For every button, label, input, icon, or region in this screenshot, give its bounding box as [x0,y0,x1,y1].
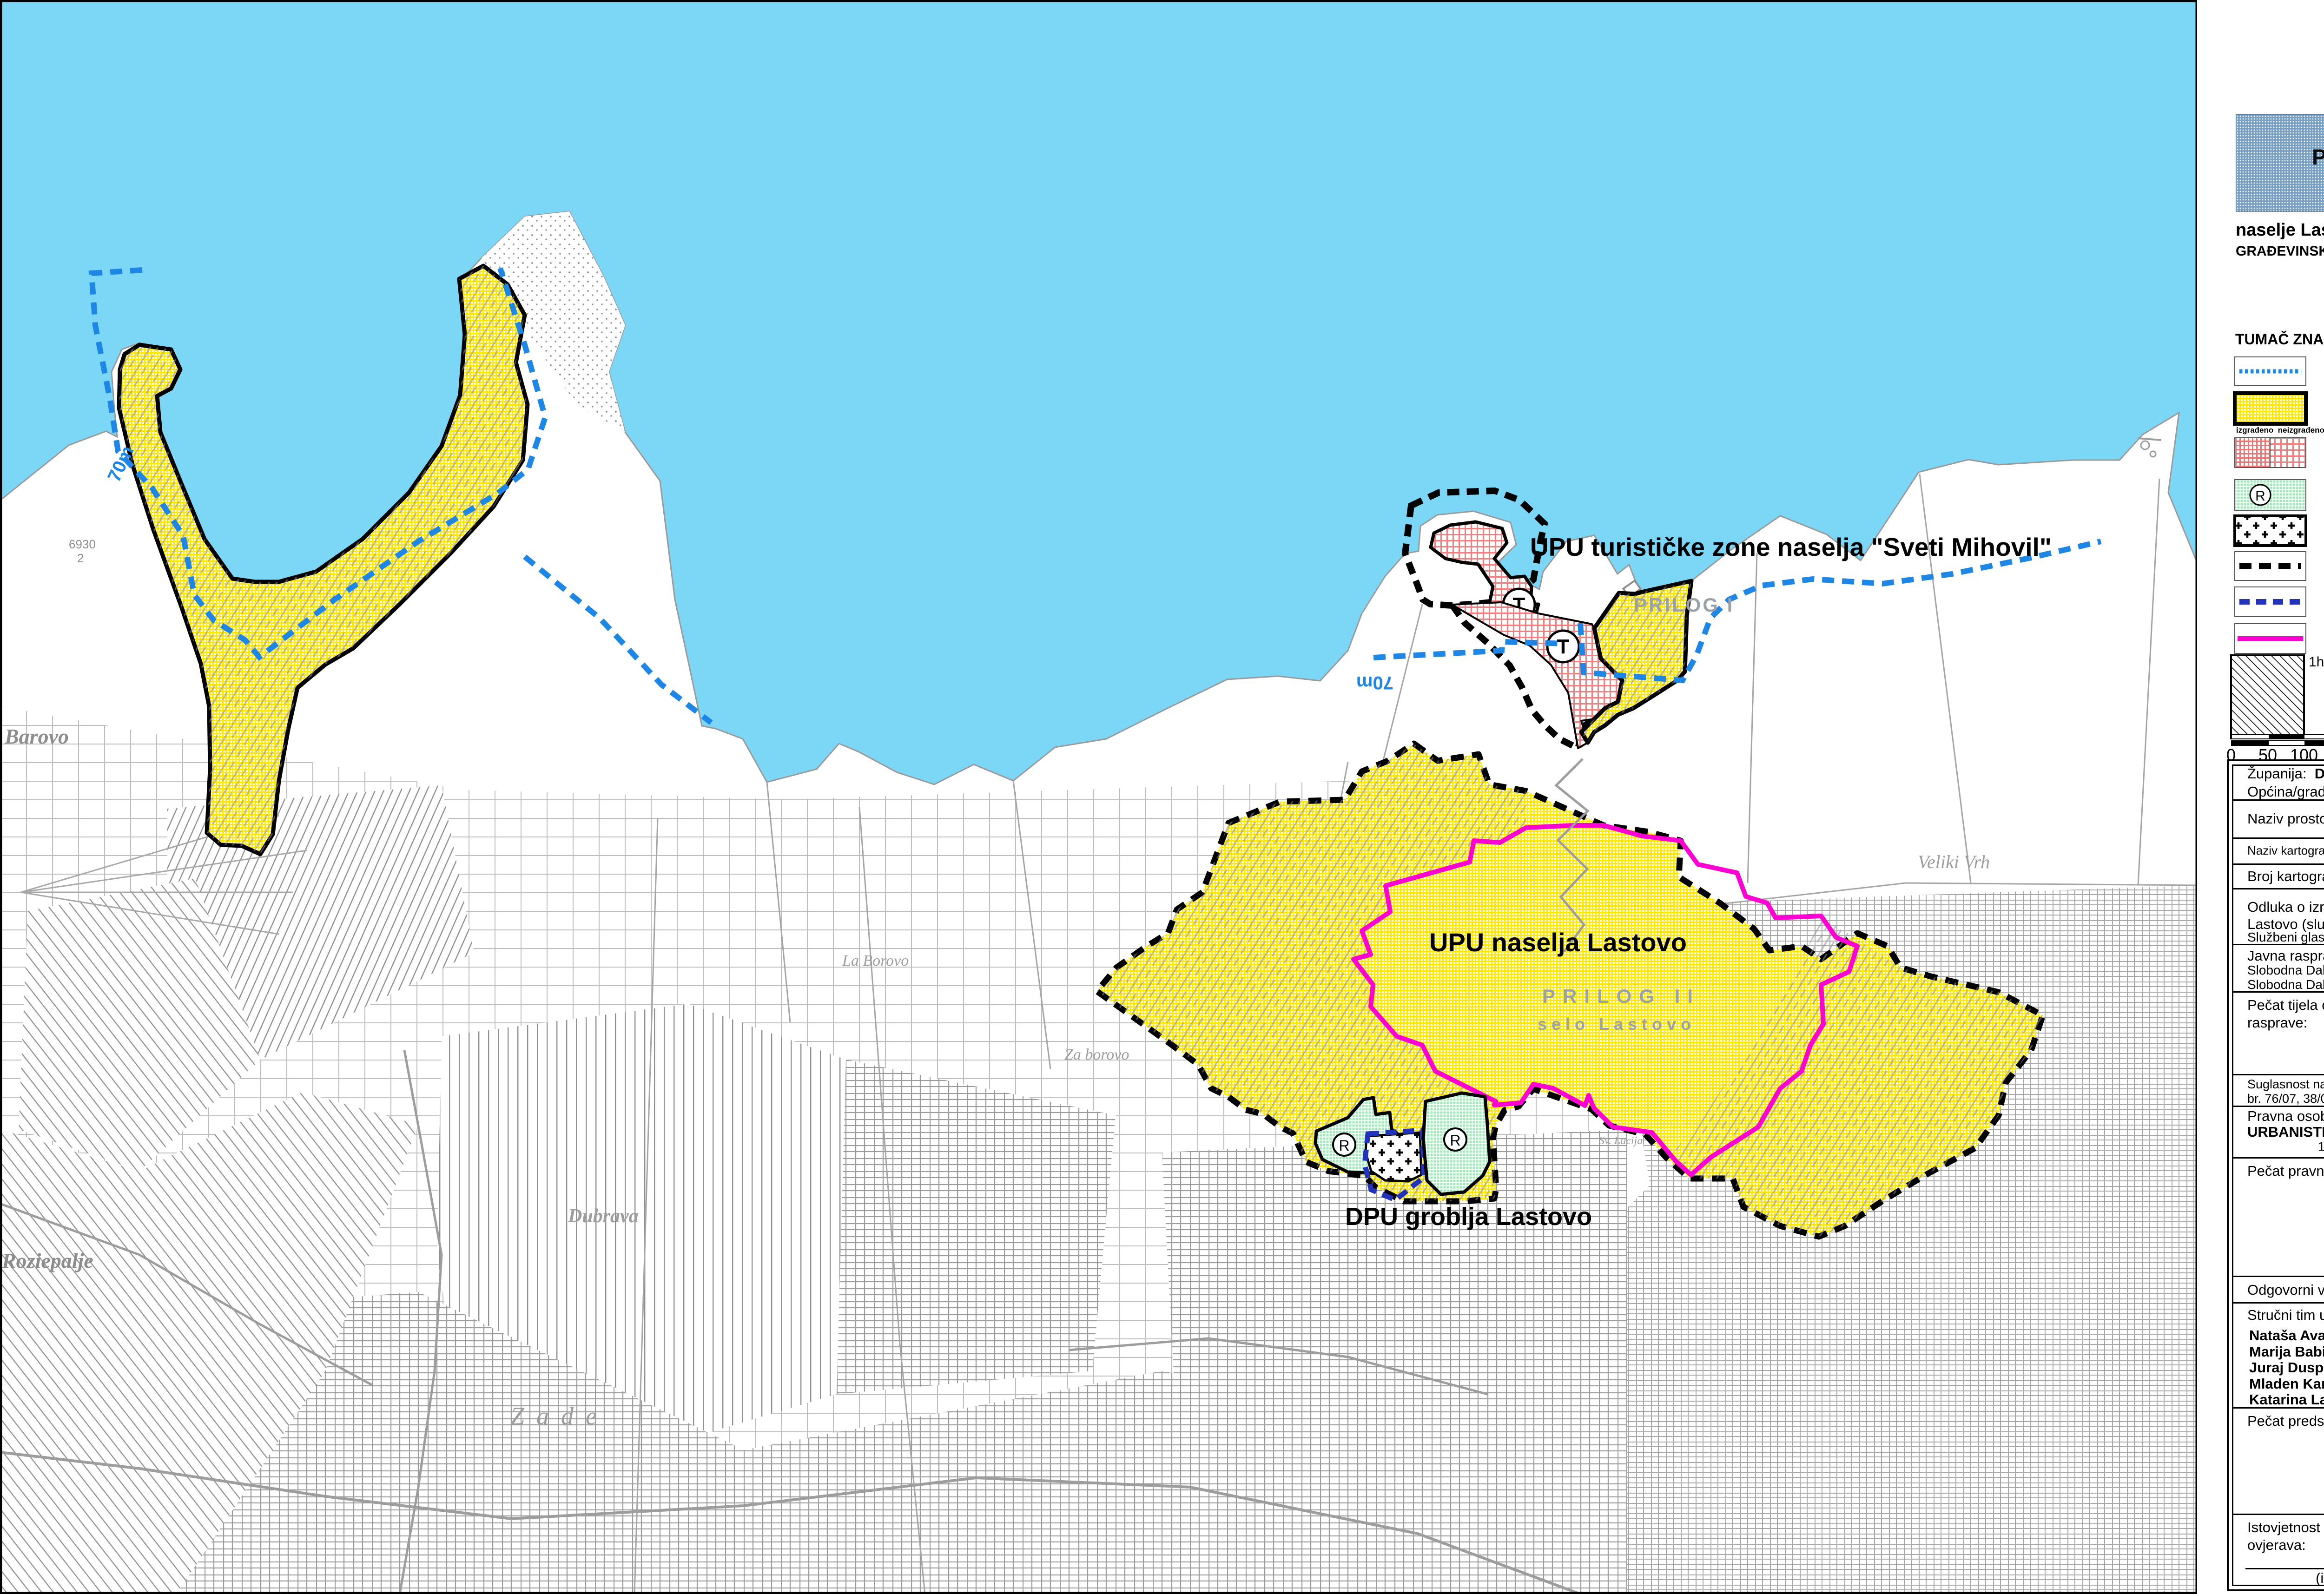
svg-text:Dubrava: Dubrava [568,1205,639,1227]
svg-text:6930: 6930 [69,537,96,551]
svg-text:R: R [1450,1132,1460,1149]
svg-text:UPU turističke zone naselja "S: UPU turističke zone naselja "Sveti Mihov… [1530,533,2052,561]
svg-text:2: 2 [77,551,84,565]
svg-text:70m: 70m [1356,672,1393,693]
svg-text:DPU groblja Lastovo: DPU groblja Lastovo [1345,1203,1592,1231]
svg-text:Roziepalje: Roziepalje [1,1249,93,1272]
svg-text:Zade: Zade [510,1402,609,1430]
svg-text:PRILOG II: PRILOG II [1542,985,1700,1007]
svg-text:La Borovo: La Borovo [842,952,909,969]
svg-text:T: T [1557,635,1570,658]
svg-text:selo Lastovo: selo Lastovo [1538,1014,1696,1034]
svg-text:R: R [2255,488,2265,504]
svg-text:PRILOG I: PRILOG I [1634,594,1734,616]
svg-text:Sv. Lucija: Sv. Lucija [1599,1135,1643,1147]
svg-text:Barovo: Barovo [4,725,69,748]
svg-text:Veliki Vrh: Veliki Vrh [1918,851,1990,872]
svg-text:UPU naselja Lastovo: UPU naselja Lastovo [1429,928,1687,957]
svg-text:Za borovo: Za borovo [1064,1046,1129,1063]
svg-text:R: R [1339,1137,1349,1154]
